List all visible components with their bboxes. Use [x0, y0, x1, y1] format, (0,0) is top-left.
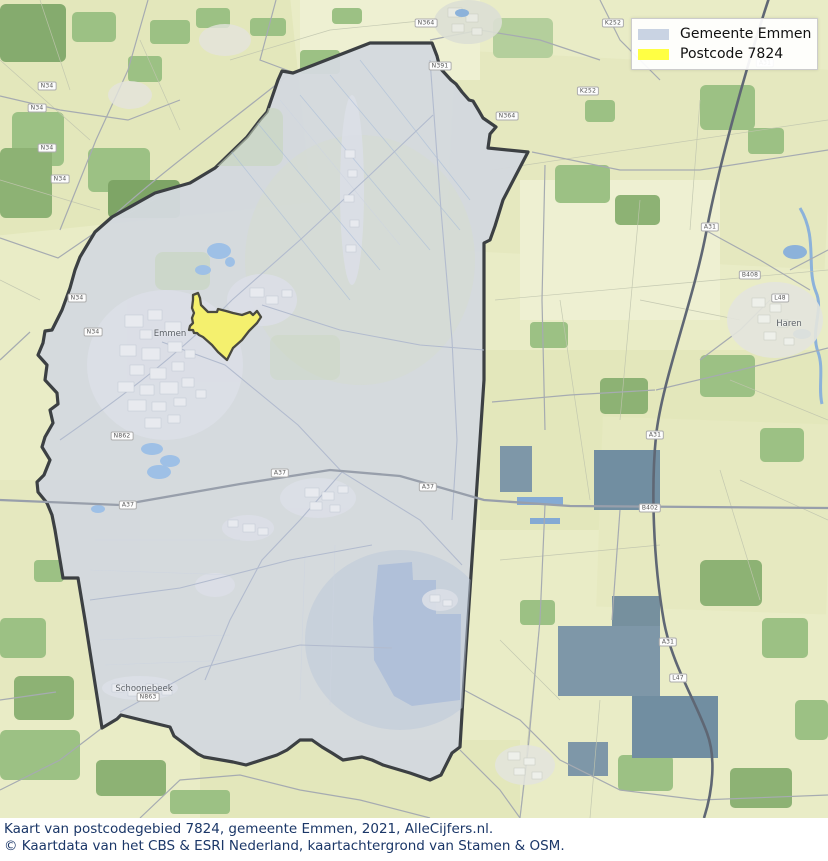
- road-shield: L47: [669, 674, 687, 683]
- road-shield: N34: [28, 104, 47, 113]
- map-image: [0, 0, 828, 818]
- town-label: Haren: [776, 319, 802, 329]
- road-shield: A37: [271, 469, 289, 478]
- road-shield: A37: [419, 483, 437, 492]
- road-shield: N862: [111, 432, 134, 441]
- legend-label-gemeente: Gemeente Emmen: [680, 24, 811, 44]
- road-shield: N364: [496, 112, 519, 121]
- road-shield: A37: [119, 501, 137, 510]
- road-shield: N34: [51, 175, 70, 184]
- legend-item-gemeente: Gemeente Emmen: [638, 24, 809, 44]
- road-shield: K252: [577, 87, 599, 96]
- road-shield: A31: [659, 638, 677, 647]
- road-shield: N34: [38, 82, 57, 91]
- road-shield: N34: [68, 294, 87, 303]
- legend-label-postcode: Postcode 7824: [680, 44, 783, 64]
- road-shield: A31: [646, 431, 664, 440]
- road-shield: B408: [739, 271, 761, 280]
- map-legend: Gemeente Emmen Postcode 7824: [631, 18, 818, 70]
- road-shield: A31: [701, 223, 719, 232]
- road-shield: L48: [771, 294, 789, 303]
- town-label: Schoonebeek: [115, 684, 172, 694]
- caption-line-1: Kaart van postcodegebied 7824, gemeente …: [0, 818, 828, 838]
- caption-line-2: © Kaartdata van het CBS & ESRI Nederland…: [0, 838, 828, 855]
- road-shield: N391: [429, 62, 452, 71]
- road-shield: B402: [639, 504, 661, 513]
- legend-swatch-postcode-icon: [638, 49, 669, 60]
- map-canvas: N34N34N34N34N34N34N364N364N391N862N863A3…: [0, 0, 828, 818]
- town-label: Emmen: [154, 329, 187, 339]
- legend-swatch-gemeente-icon: [638, 29, 669, 40]
- road-shield: N364: [415, 19, 438, 28]
- road-shield: N34: [38, 144, 57, 153]
- caption: Kaart van postcodegebied 7824, gemeente …: [0, 818, 828, 861]
- road-shield: N34: [84, 328, 103, 337]
- road-shield: K252: [602, 19, 624, 28]
- legend-item-postcode: Postcode 7824: [638, 44, 809, 64]
- page: N34N34N34N34N34N34N364N364N391N862N863A3…: [0, 0, 828, 861]
